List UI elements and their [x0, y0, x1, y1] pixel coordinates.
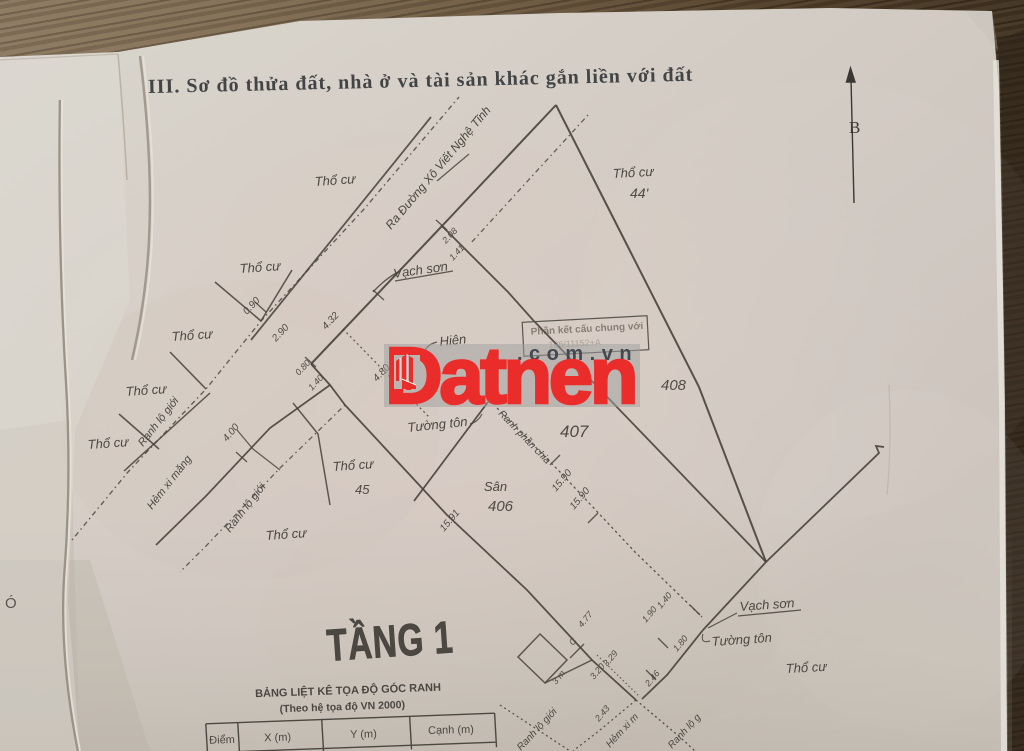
svg-text:Thổ cư: Thổ cư [265, 525, 307, 543]
svg-text:408: 408 [661, 377, 687, 394]
svg-text:Cạnh (m): Cạnh (m) [428, 724, 474, 737]
svg-text:Thổ cư: Thổ cư [171, 326, 213, 344]
svg-text:Thổ cư: Thổ cư [785, 659, 827, 676]
svg-text:407: 407 [560, 422, 589, 441]
svg-text:B: B [849, 118, 860, 137]
svg-text:Thổ cư: Thổ cư [125, 381, 167, 399]
svg-text:Thổ cư: Thổ cư [332, 456, 374, 474]
svg-text:Y (m): Y (m) [350, 728, 377, 741]
svg-text:Thổ cư: Thổ cư [239, 258, 281, 276]
svg-text:Ó: Ó [5, 595, 17, 612]
svg-text:44': 44' [630, 185, 650, 201]
svg-text:X (m): X (m) [264, 732, 291, 745]
svg-text:Thổ cư: Thổ cư [612, 164, 654, 181]
svg-text:406: 406 [488, 498, 514, 515]
svg-text:Điểm: Điểm [209, 734, 235, 747]
svg-text:Sân: Sân [484, 479, 507, 494]
svg-text:45: 45 [355, 482, 370, 497]
svg-text:TẦNG 1: TẦNG 1 [325, 612, 455, 671]
svg-text:Thổ cư: Thổ cư [314, 171, 356, 189]
svg-text:Thổ cư: Thổ cư [87, 434, 129, 452]
